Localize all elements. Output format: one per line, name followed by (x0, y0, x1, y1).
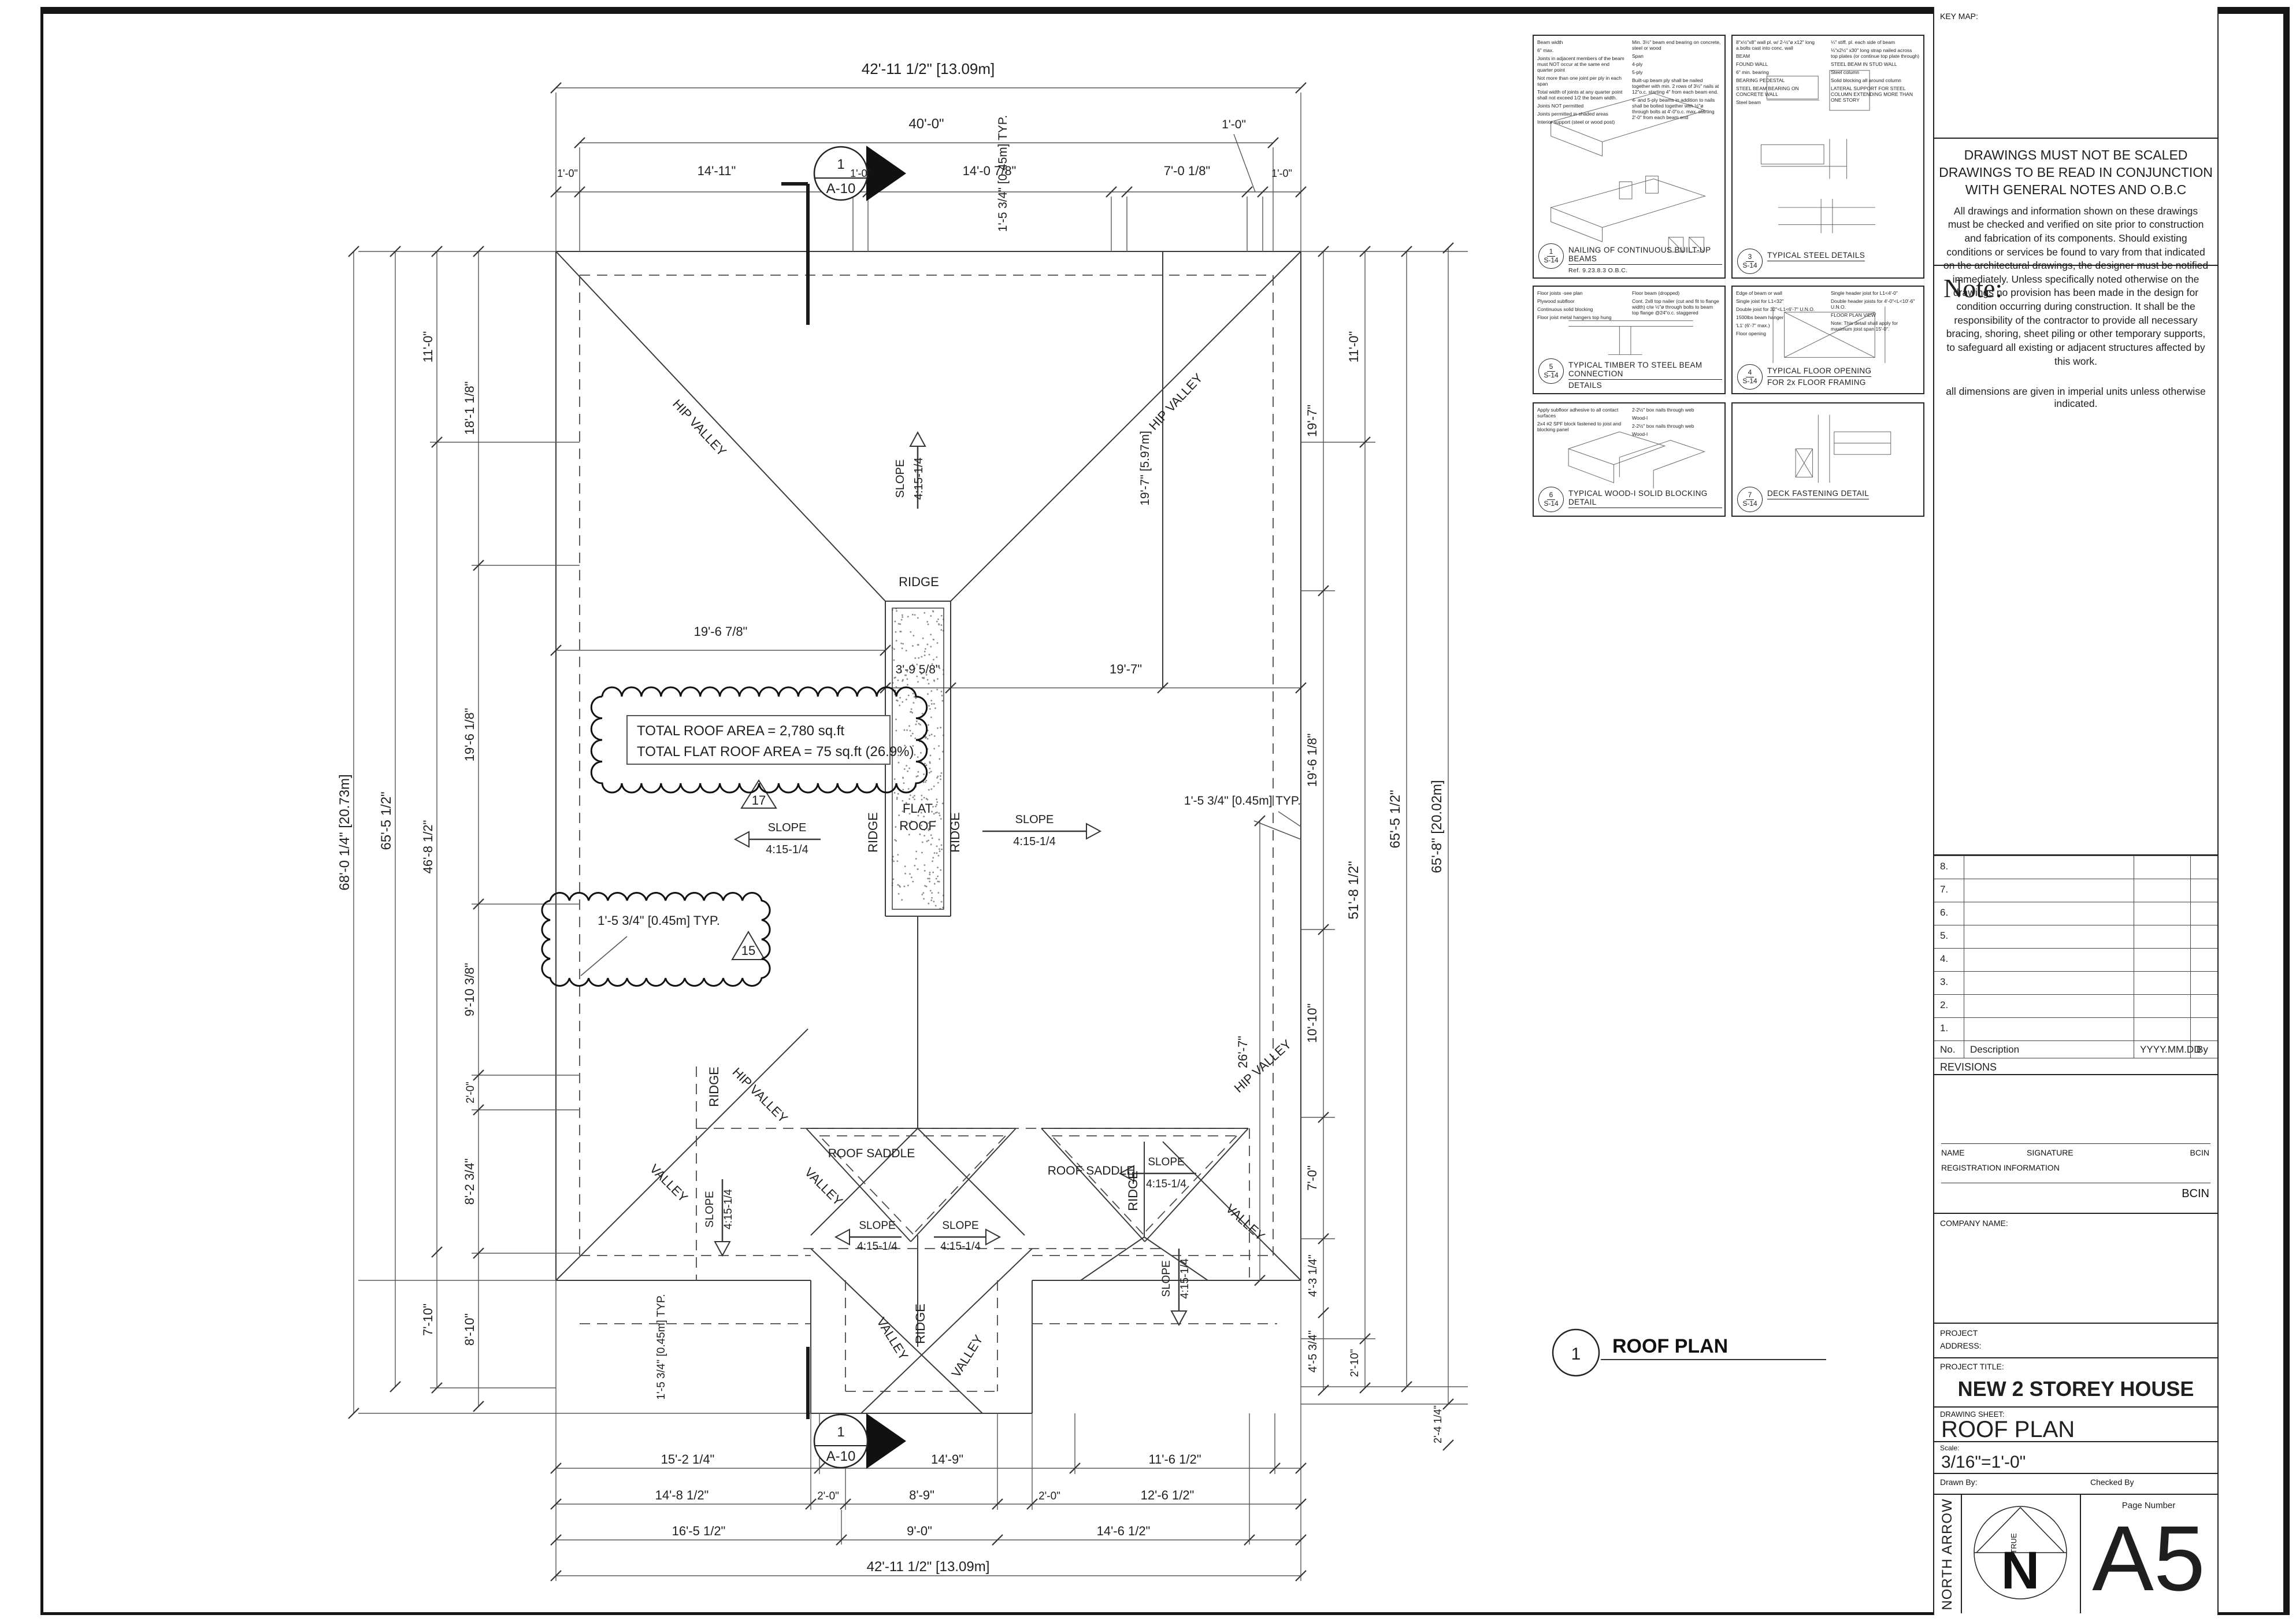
plan-geometry (938, 855, 940, 857)
plan-geometry (922, 892, 924, 894)
plan-geometry (919, 834, 921, 835)
plan-geometry (923, 773, 925, 775)
plan-text: 2'-4 1/4" (1432, 1405, 1444, 1443)
plan-geometry (907, 771, 908, 772)
plan-geometry (897, 854, 899, 856)
plan-geometry (928, 705, 930, 707)
detail-annotation: STEEL BEAM BEARING ON CONCRETE WALL (1736, 86, 1825, 97)
plan-text: 65'-8" [20.02m] (1429, 780, 1445, 873)
plan-title: ROOF PLAN (1612, 1335, 1728, 1357)
plan-text: RIDGE (866, 812, 880, 853)
plan-text: 1 (837, 157, 844, 172)
plan-geometry (937, 881, 939, 883)
plan-text: 12'-6 1/2" (1141, 1488, 1195, 1502)
revision-row-cell (2191, 856, 2217, 879)
detail-3-s14: 8"x½"x8" wall pl. w/ 2-½"ø x12" long a.b… (1731, 35, 1924, 279)
detail-annotation: Span (1632, 53, 1721, 59)
plan-geometry (896, 640, 897, 642)
slope-arrow-icon (836, 1230, 850, 1245)
detail-annotation: Steel beam (1736, 99, 1825, 105)
plan-geometry (924, 870, 926, 872)
plan-geometry (934, 735, 936, 737)
plan-text: 14'-11" (698, 164, 736, 178)
plan-geometry (556, 251, 885, 601)
detail-annotation: 1500lbs beam hanger (1736, 314, 1825, 320)
plan-geometry (923, 864, 925, 866)
plan-geometry (929, 762, 931, 764)
plan-geometry (915, 697, 917, 699)
detail-annotation: FOUND WALL (1736, 61, 1825, 67)
plan-geometry (937, 782, 939, 784)
plan-geometry (935, 812, 937, 814)
plan-text: 1'-0" (557, 168, 578, 179)
revisions-header-cell: No. (1934, 1040, 1964, 1058)
revision-row-number: 5. (1934, 925, 1964, 948)
plan-geometry (904, 873, 906, 875)
plan-geometry (928, 903, 929, 905)
revision-row-cell (2191, 925, 2217, 948)
plan-geometry (910, 711, 911, 713)
plan-geometry (932, 857, 934, 858)
plan-geometry (922, 713, 923, 714)
plan-geometry (936, 799, 937, 801)
plan-geometry (896, 699, 897, 701)
detail-annotation: Min. 3½" beam end bearing on concrete, s… (1632, 39, 1721, 51)
plan-geometry (933, 659, 934, 661)
plan-geometry (929, 873, 930, 875)
detail-annotation: Single joist for L1<32" (1736, 298, 1825, 304)
plan-geometry (930, 843, 932, 845)
detail-annotation: ¼" stiff. pl. each side of beam (1831, 39, 1920, 45)
plan-geometry (923, 816, 925, 817)
plan-geometry (913, 702, 914, 703)
detail-annotation: 5-ply (1632, 69, 1721, 75)
plan-geometry (902, 647, 903, 649)
checked-by-label: Checked By (2090, 1477, 2134, 1487)
plan-geometry (894, 792, 896, 794)
north-arrow-cell: NORTH ARROW (1934, 1495, 1962, 1613)
plan-geometry (921, 852, 923, 854)
plan-geometry (933, 639, 934, 640)
plan-geometry (896, 610, 897, 612)
plan-geometry (940, 775, 941, 777)
section-marker-arrow (866, 1413, 906, 1469)
detail-annotation: Floor joist metal hangers top hung (1537, 314, 1626, 320)
revision-row-cell (1964, 925, 2134, 948)
plan-text: 8'-9" (909, 1488, 934, 1502)
company-name-label: COMPANY NAME: (1940, 1219, 2008, 1228)
revision-cloud (542, 893, 770, 986)
plan-geometry (939, 758, 940, 760)
plan-geometry (923, 797, 925, 799)
signature-label: SIGNATURE (2027, 1148, 2074, 1157)
plan-text: 19'-7" (1110, 662, 1142, 676)
plan-geometry (922, 842, 923, 843)
revision-row-cell (2134, 925, 2191, 948)
plan-geometry (933, 748, 935, 750)
plan-geometry (939, 812, 940, 814)
plan-geometry (935, 905, 937, 906)
plan-text: RIDGE (913, 1303, 928, 1344)
plan-geometry (917, 868, 918, 870)
detail-annotation: 6" min. bearing (1736, 69, 1825, 75)
plan-geometry (915, 724, 917, 725)
plan-geometry (907, 884, 909, 886)
plan-geometry (908, 788, 910, 790)
plan-geometry (930, 646, 932, 647)
plan-text: SLOPE (1160, 1260, 1173, 1297)
plan-text: ROOF (899, 819, 936, 833)
plan-geometry (928, 840, 929, 842)
plan-geometry (911, 712, 913, 714)
disclaimer-heading: DRAWINGS MUST NOT BE SCALED DRAWINGS TO … (1934, 139, 2217, 202)
revisions-label: REVISIONS (1934, 1058, 2217, 1075)
plan-geometry (903, 886, 905, 887)
plan-geometry (938, 623, 940, 625)
plan-text: SLOPE (942, 1220, 978, 1232)
plan-geometry (921, 656, 922, 658)
revision-row-cell (2191, 1017, 2217, 1040)
plan-text: 1'-5 3/4" [0.45m] TYP. (655, 1294, 667, 1400)
plan-text: 1'-0" (850, 168, 871, 179)
plan-geometry (936, 777, 938, 779)
note-section: Note: (1934, 266, 2217, 856)
plan-geometry (939, 881, 940, 883)
plan-geometry (919, 724, 921, 725)
plan-geometry (906, 765, 907, 766)
plan-geometry (922, 638, 924, 639)
plan-geometry (930, 716, 932, 718)
detail-annotation: 8"x½"x8" wall pl. w/ 2-½"ø x12" long a.b… (1736, 39, 1825, 51)
plan-geometry (931, 892, 933, 894)
detail-bubble: 7S-14 (1737, 487, 1763, 512)
signature-line (1941, 1143, 2210, 1144)
plan-geometry (902, 789, 904, 791)
revision-row-cell (2134, 948, 2191, 971)
plan-text: 16'-5 1/2" (672, 1524, 726, 1538)
plan-geometry (929, 772, 930, 773)
detail-annotation: Wood-I (1632, 415, 1721, 421)
drawing-sheet-name: ROOF PLAN (1941, 1417, 2075, 1443)
plan-text: 2'-0" (817, 1490, 839, 1502)
plan-geometry (941, 615, 943, 617)
plan-text: 1 (837, 1424, 844, 1440)
plan-text: 1'-5 3/4" [0.45m] TYP. (1184, 794, 1301, 808)
plan-geometry (892, 879, 894, 880)
detail-bubble: 4S-14 (1737, 364, 1763, 390)
plan-geometry (917, 756, 919, 758)
plan-geometry (930, 615, 932, 617)
plan-geometry (917, 771, 919, 773)
plan-geometry (916, 720, 918, 722)
company-section: COMPANY NAME: (1934, 1214, 2217, 1324)
plan-geometry (933, 679, 935, 681)
plan-geometry (1254, 821, 1301, 839)
plan-geometry (937, 876, 939, 877)
plan-geometry (941, 772, 943, 774)
plan-geometry (940, 629, 942, 631)
plan-text: 11'-0" (421, 331, 435, 362)
revision-row-cell (2134, 879, 2191, 902)
detail-annotation: Joints in adjacent members of the beam m… (1537, 55, 1626, 73)
drawn-by-section: Drawn By: Checked By (1934, 1474, 2217, 1495)
plan-text: 10'-10" (1305, 1003, 1319, 1043)
plan-text: SLOPE (1015, 813, 1054, 826)
slope-arrow-icon (715, 1242, 730, 1256)
revision-row-cell (1964, 994, 2134, 1017)
plan-geometry (927, 693, 929, 695)
plan-text: 2'-10" (1349, 1349, 1361, 1377)
plan-geometry (922, 677, 923, 679)
plan-geometry (923, 835, 925, 836)
plan-geometry (1443, 1440, 1453, 1450)
plan-geometry (908, 695, 910, 697)
plan-text: 15'-2 1/4" (661, 1452, 715, 1467)
plan-geometry (932, 872, 934, 873)
plan-geometry (928, 789, 930, 791)
detail-annotation: Built-up beam ply shall be nailed togeth… (1632, 77, 1721, 95)
plan-geometry (906, 678, 908, 680)
revision-row-cell (1964, 971, 2134, 994)
plan-text: 1'-0" (1271, 168, 1292, 179)
plan-geometry (899, 886, 901, 888)
revisions-header-cell: By (2191, 1040, 2217, 1058)
plan-geometry (926, 621, 928, 623)
revision-row-cell (1964, 856, 2134, 879)
revision-row-cell (2191, 971, 2217, 994)
plan-geometry (929, 878, 930, 880)
detail-annotation: Not more than one joint per ply in each … (1537, 75, 1626, 87)
plan-geometry (937, 776, 939, 777)
detail-annotation: Total width of joints at any quarter poi… (1537, 89, 1626, 101)
plan-text: 19'-6 1/8" (462, 708, 477, 762)
plan-geometry (895, 826, 896, 828)
plan-geometry (934, 852, 936, 854)
detail-annotation: BEAM (1736, 53, 1825, 59)
project-label: PROJECT (1940, 1328, 1978, 1338)
plan-text: RIDGE (707, 1066, 721, 1107)
page-number-cell: Page Number A5 (2080, 1495, 2217, 1613)
plan-geometry (1144, 1237, 1208, 1280)
plan-geometry (931, 897, 933, 899)
plan-geometry (893, 677, 895, 679)
plan-text: RIDGE (899, 575, 939, 589)
detail-annotation: STEEL BEAM IN STUD WALL (1831, 61, 1920, 67)
revision-row-cell (2134, 902, 2191, 925)
plan-text: ROOF SADDLE (828, 1147, 915, 1160)
plan-geometry (908, 725, 910, 727)
detail-annotation: Wood-I (1632, 431, 1721, 437)
detail-annotations: Apply subfloor adhesive to all contact s… (1537, 407, 1721, 437)
plan-geometry (912, 645, 914, 647)
revision-row-number: 4. (1934, 948, 1964, 971)
plan-geometry (927, 877, 929, 879)
plan-text: HIP VALLEY (730, 1065, 791, 1126)
revision-row-number: 1. (1934, 1017, 1964, 1040)
detail-annotation: 6" max. (1537, 47, 1626, 53)
plan-geometry (910, 730, 911, 732)
detail-annotations: Floor joists -see planPlywood subfloorCo… (1537, 290, 1721, 320)
plan-geometry (902, 701, 903, 703)
plan-geometry (941, 901, 943, 903)
plan-geometry (930, 788, 932, 790)
plan-geometry (933, 786, 935, 787)
detail-annotation: 4-ply (1632, 61, 1721, 67)
plan-text: 68'-0 1/4" [20.73m] (337, 774, 353, 890)
plan-text: 8'-2 3/4" (462, 1158, 477, 1205)
revision-row-number: 6. (1934, 902, 1964, 925)
project-address-section: PROJECT ADDRESS: (1934, 1324, 2217, 1358)
detail-annotation: Cont. 2x8 top nailer (cut and fit to fla… (1632, 298, 1721, 316)
title-block: KEY MAP: DRAWINGS MUST NOT BE SCALED DRA… (1933, 7, 2219, 1615)
project-title: NEW 2 STOREY HOUSE (1934, 1377, 2217, 1401)
plan-geometry (906, 699, 907, 701)
plan-geometry (933, 901, 934, 902)
plan-geometry (951, 251, 1301, 601)
plan-geometry (930, 771, 932, 772)
plan-geometry (895, 840, 897, 842)
detail-title: TYPICAL TIMBER TO STEEL BEAM CONNECTIOND… (1568, 358, 1722, 390)
plan-geometry (928, 683, 930, 684)
revision-row-number: 8. (1934, 856, 1964, 879)
detail-title: DECK FASTENING DETAIL (1767, 487, 1869, 499)
plan-text: A-10 (826, 181, 856, 197)
revisions-header-cell: YYYY.MM.DD (2134, 1040, 2191, 1058)
plan-text: 11'-6 1/2" (1148, 1452, 1201, 1467)
revision-row-cell (1964, 1017, 2134, 1040)
plan-text: VALLEY (1223, 1201, 1268, 1243)
drawn-by-label: Drawn By: (1940, 1477, 1978, 1487)
plan-text: 19'-6 7/8" (694, 624, 748, 639)
plan-geometry (924, 885, 926, 887)
plan-geometry (915, 858, 917, 860)
plan-geometry (933, 703, 935, 705)
plan-text: RIDGE (948, 812, 962, 853)
plan-geometry (896, 860, 898, 862)
plan-geometry (902, 680, 903, 682)
plan-geometry (913, 693, 914, 694)
plan-geometry (917, 644, 919, 646)
plan-geometry (920, 752, 922, 754)
detail-annotation: Double joist for 32"<L1<6'-7" U.N.O. (1736, 306, 1825, 312)
revision-row-cell (2191, 879, 2217, 902)
plan-geometry (895, 719, 897, 720)
plan-geometry (903, 782, 905, 784)
plan-geometry (921, 799, 923, 801)
plan-geometry (917, 775, 919, 777)
plan-geometry (941, 845, 943, 846)
true-north-label: TRUE (2009, 1533, 2018, 1554)
plan-text: 7'-10" (421, 1303, 435, 1336)
plan-geometry (913, 635, 914, 636)
plan-text: 14'-8 1/2" (655, 1488, 709, 1502)
detail-annotation: Apply subfloor adhesive to all contact s… (1537, 407, 1626, 419)
plan-geometry (903, 729, 905, 731)
plan-text: 42'-11 1/2" [13.09m] (867, 1559, 990, 1575)
revision-row-cell (2134, 971, 2191, 994)
plan-geometry (939, 814, 941, 816)
plan-geometry (908, 834, 910, 835)
plan-geometry (902, 643, 904, 645)
plan-geometry (929, 881, 930, 883)
detail-bubble: 6S-14 (1538, 487, 1564, 512)
plan-geometry (929, 708, 931, 710)
plan-geometry (915, 776, 917, 777)
detail-annotation: ⅛"x2½" x30" long strap nailed across top… (1831, 47, 1920, 59)
plan-text: 4:15-1/4 (1013, 835, 1055, 848)
north-letter: N (2001, 1541, 2039, 1600)
plan-geometry (924, 654, 926, 656)
plan-geometry (935, 806, 937, 808)
plan-geometry (923, 612, 925, 614)
plan-text: 4:15-1/4 (722, 1189, 735, 1230)
plan-text: 4'-5 3/4" (1307, 1330, 1319, 1372)
plan-text: 46'-8 1/2" (421, 820, 435, 874)
detail-annotation: Single header joist for L1<4'-0" (1831, 290, 1920, 296)
plan-geometry (908, 798, 910, 800)
detail-annotation: Edge of beam or wall (1736, 290, 1825, 296)
plan-geometry (899, 705, 900, 706)
plan-geometry (902, 777, 904, 779)
plan-geometry (900, 631, 902, 632)
plan-geometry (894, 621, 896, 623)
revision-row-cell (2134, 994, 2191, 1017)
plan-geometry (928, 624, 929, 625)
detail-annotation: Interior support (steel or wood post) (1537, 119, 1626, 125)
plan-geometry (926, 764, 928, 766)
slope-arrow-icon (1171, 1311, 1186, 1325)
plan-text: SLOPE (768, 821, 807, 834)
revision-row-cell (1964, 948, 2134, 971)
detail-annotation: 2-2½" box nails through web (1632, 407, 1721, 413)
plan-geometry (941, 700, 943, 702)
scale-label: Scale: (1940, 1444, 1959, 1452)
plan-text: 1'-0" (1222, 118, 1246, 131)
plan-geometry (895, 631, 897, 633)
detail-bubble: 1S-14 (1538, 243, 1564, 269)
plan-text: 7'-0" (1305, 1165, 1319, 1191)
plan-text: 4'-3 1/4" (1307, 1254, 1319, 1297)
plan-geometry (931, 734, 933, 735)
plan-geometry (934, 883, 936, 885)
detail-5-s14: Floor joists -see planPlywood subfloorCo… (1533, 286, 1726, 394)
plan-geometry (940, 727, 941, 728)
plan-geometry (556, 1029, 808, 1280)
plan-geometry (1081, 1237, 1144, 1280)
plan-geometry (937, 727, 939, 729)
plan-geometry (936, 852, 938, 854)
revision-row-cell (2134, 856, 2191, 879)
plan-geometry (907, 616, 909, 617)
plan-text: TOTAL ROOF AREA = 2,780 sq.ft (637, 723, 844, 739)
plan-text: 11'-0" (1347, 331, 1361, 362)
plan-geometry (914, 798, 915, 800)
plan-geometry (914, 657, 916, 659)
address-label: ADDRESS: (1940, 1341, 1982, 1350)
detail-annotation: Joints NOT permitted (1537, 103, 1626, 109)
plan-geometry (940, 779, 941, 780)
plan-geometry (902, 614, 903, 616)
plan-geometry (897, 884, 899, 886)
revision-row-cell (1964, 879, 2134, 902)
project-title-label: PROJECT TITLE: (1940, 1362, 2004, 1371)
plan-geometry (581, 936, 627, 976)
plan-text: HIP VALLEY (1146, 371, 1206, 433)
detail-annotations: Beam width6" max.Joints in adjacent memb… (1537, 39, 1721, 125)
plan-geometry (906, 650, 907, 651)
plan-geometry (941, 849, 943, 850)
plan-geometry (896, 730, 897, 732)
